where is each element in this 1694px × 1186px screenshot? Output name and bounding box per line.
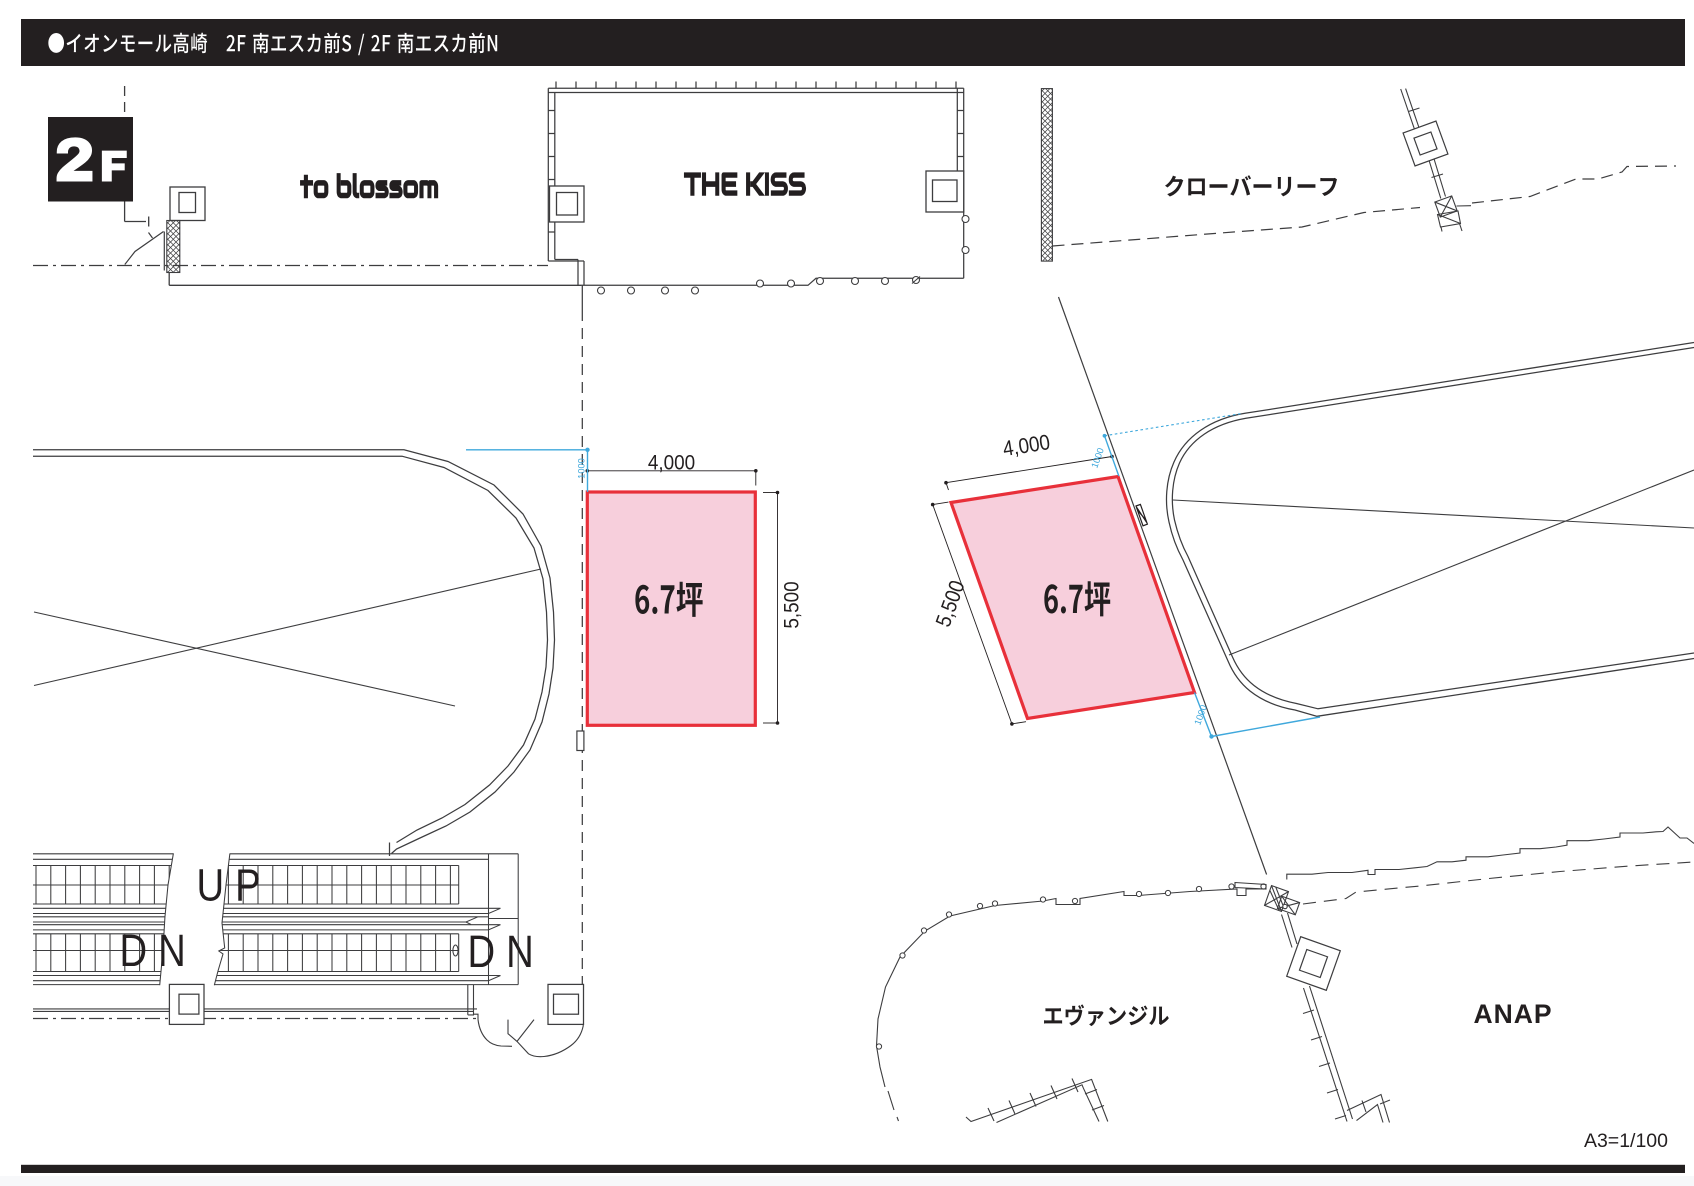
svg-text:A3=1/100: A3=1/100 — [1584, 1130, 1668, 1152]
svg-text:UP: UP — [197, 860, 272, 911]
svg-text:ANAP: ANAP — [1473, 999, 1552, 1029]
svg-text:DN: DN — [120, 925, 197, 976]
svg-text:4,000: 4,000 — [648, 451, 695, 474]
svg-text:DN: DN — [468, 926, 545, 977]
svg-text:5,500: 5,500 — [780, 581, 803, 628]
svg-text:1000: 1000 — [577, 458, 587, 479]
